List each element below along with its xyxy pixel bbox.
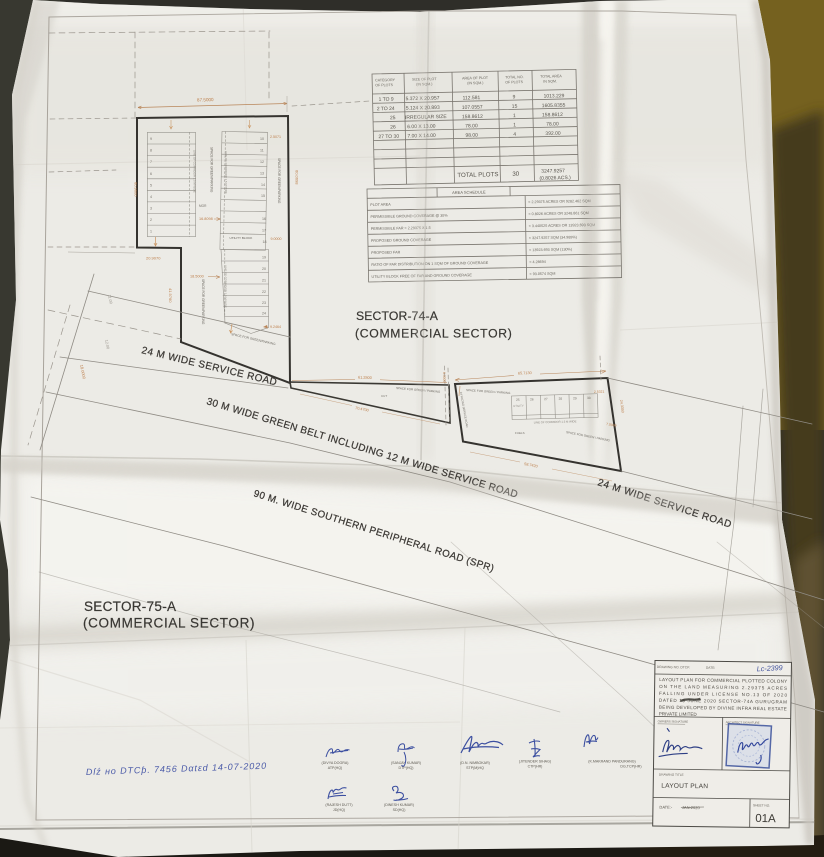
- svg-text:112.581: 112.581: [463, 95, 481, 101]
- svg-text:= 13923.693 SQM (130%): = 13923.693 SQM (130%): [529, 247, 572, 252]
- svg-text:1: 1: [513, 113, 516, 119]
- svg-text:(0.8026 ACS.): (0.8026 ACS.): [539, 175, 571, 182]
- svg-text:DATE:: DATE:: [706, 666, 716, 670]
- svg-text:PROPOSED FAR: PROPOSED FAR: [371, 250, 400, 255]
- svg-text:SPACE FOR GREEN/PARKING: SPACE FOR GREEN/PARKING: [210, 147, 214, 193]
- svg-text:25: 25: [390, 115, 396, 121]
- svg-text:MGR: MGR: [199, 204, 207, 208]
- svg-text:CUT: CUT: [381, 394, 387, 398]
- svg-text:158.8612: 158.8612: [542, 112, 563, 118]
- svg-text:(COMMERCIAL SECTOR): (COMMERCIAL SECTOR): [355, 327, 513, 341]
- svg-text:87.5000: 87.5000: [197, 97, 214, 102]
- svg-text:IN SQM.: IN SQM.: [543, 79, 557, 83]
- svg-text:= 4.28694: = 4.28694: [529, 260, 546, 264]
- svg-text:LAYOUT PLAN: LAYOUT PLAN: [661, 783, 708, 791]
- svg-text:1 TO 9: 1 TO 9: [379, 97, 394, 103]
- svg-text:SD(HQ): SD(HQ): [393, 808, 406, 812]
- svg-text:98.00: 98.00: [465, 133, 478, 139]
- svg-text:DTP(HQ): DTP(HQ): [399, 766, 414, 770]
- svg-text:PRIVATE LIMITED: PRIVATE LIMITED: [659, 711, 698, 717]
- svg-text:UTILITY BLOCK: UTILITY BLOCK: [230, 236, 254, 240]
- svg-text:DRAWING TITLE: DRAWING TITLE: [659, 773, 684, 777]
- svg-text:6.00 X 13.00: 6.00 X 13.00: [407, 124, 436, 131]
- svg-text:14: 14: [261, 183, 265, 187]
- svg-text:19: 19: [262, 256, 266, 260]
- svg-text:(DIVYA DOGRA): (DIVYA DOGRA): [322, 761, 349, 765]
- svg-text:60.9600: 60.9600: [134, 182, 139, 197]
- svg-text:(RAJESH DUTT): (RAJESH DUTT): [325, 803, 352, 807]
- svg-text:2: 2: [150, 218, 152, 222]
- svg-text:78.00: 78.00: [465, 123, 478, 129]
- svg-text:5: 5: [150, 183, 152, 187]
- svg-text:9.2464: 9.2464: [270, 325, 281, 329]
- svg-text:15: 15: [512, 104, 518, 110]
- svg-text:= 3247.9257 SQM (34.989%): = 3247.9257 SQM (34.989%): [529, 235, 577, 240]
- svg-text:SPACE FOR GREEN/PARKING: SPACE FOR GREEN/PARKING: [201, 279, 205, 325]
- svg-text:158.8612: 158.8612: [462, 114, 483, 120]
- svg-text:30: 30: [512, 171, 520, 178]
- svg-text:26: 26: [530, 397, 534, 401]
- svg-text:OWNERS SIGNATURE: OWNERS SIGNATURE: [658, 719, 689, 723]
- svg-text:(COMMERCIAL SECTOR): (COMMERCIAL SECTOR): [83, 616, 255, 631]
- svg-text:FUELS: FUELS: [515, 431, 525, 435]
- svg-text:01A: 01A: [755, 813, 776, 825]
- svg-text:2 TO 24: 2 TO 24: [377, 106, 395, 112]
- svg-text:AREA SCHEDULE: AREA SCHEDULE: [452, 189, 486, 195]
- svg-text:30: 30: [587, 396, 591, 400]
- svg-text:5.372 X 20.957: 5.372 X 20.957: [406, 95, 440, 102]
- svg-text:7.00 X 14.00: 7.00 X 14.00: [407, 133, 436, 140]
- svg-text:1013.229: 1013.229: [543, 93, 564, 99]
- svg-text:17: 17: [262, 228, 266, 232]
- svg-text:23: 23: [262, 301, 266, 305]
- svg-text:11: 11: [260, 149, 264, 153]
- svg-text:2.5321: 2.5321: [594, 390, 605, 394]
- svg-text:TOTAL NO.: TOTAL NO.: [505, 75, 524, 79]
- svg-text:IRREGULAR SIZE: IRREGULAR SIZE: [405, 114, 447, 121]
- svg-text:16.8098: 16.8098: [199, 217, 213, 221]
- svg-text:78.00: 78.00: [546, 121, 559, 127]
- svg-text:CTP(HR): CTP(HR): [528, 765, 543, 769]
- svg-text:6: 6: [150, 172, 152, 176]
- svg-text:9: 9: [512, 94, 515, 100]
- svg-text:(K.MAKRAND PANDURANG): (K.MAKRAND PANDURANG): [588, 760, 635, 764]
- svg-text:4: 4: [513, 132, 516, 138]
- svg-text:10: 10: [260, 137, 264, 141]
- svg-text:(JITENDER SIHAG): (JITENDER SIHAG): [519, 760, 551, 764]
- svg-text:65.7130: 65.7130: [518, 371, 532, 375]
- svg-text:22: 22: [262, 290, 266, 294]
- svg-text:(D.N. NIMBOKAR): (D.N. NIMBOKAR): [460, 761, 490, 765]
- svg-text:SPACE FOR GREEN/PARKING: SPACE FOR GREEN/PARKING: [277, 158, 281, 204]
- svg-text:LINE OF CORRIDOR 1.5 M WIDE: LINE OF CORRIDOR 1.5 M WIDE: [224, 151, 228, 194]
- svg-text:16: 16: [262, 217, 266, 221]
- svg-text:OF PLOTS: OF PLOTS: [505, 80, 523, 84]
- svg-text:3: 3: [150, 207, 152, 211]
- svg-text:8: 8: [150, 149, 152, 153]
- svg-text:18: 18: [263, 240, 267, 244]
- svg-text:7: 7: [150, 160, 152, 164]
- svg-text:LINE OF CORRIDOR 1.5 M WIDE: LINE OF CORRIDOR 1.5 M WIDE: [224, 265, 228, 308]
- svg-text:29: 29: [573, 396, 577, 400]
- svg-text:41.9760: 41.9760: [168, 288, 173, 303]
- svg-text:DRAWING NO. DTCP:: DRAWING NO. DTCP:: [657, 665, 691, 669]
- svg-text:PLOT AREA: PLOT AREA: [370, 203, 391, 207]
- svg-text:9.0000: 9.0000: [271, 237, 282, 241]
- svg-text:OF PLOTS: OF PLOTS: [375, 83, 393, 87]
- svg-text:18.5000: 18.5000: [190, 275, 204, 279]
- svg-text:AREA OF PLOT: AREA OF PLOT: [462, 76, 489, 81]
- svg-text:DATE:-: DATE:-: [659, 805, 673, 810]
- svg-text:12: 12: [260, 160, 264, 164]
- svg-text:4: 4: [150, 195, 152, 199]
- svg-text:1: 1: [513, 122, 516, 128]
- svg-text:TOTAL PLOTS: TOTAL PLOTS: [457, 171, 498, 179]
- svg-text:SECTOR-75-A: SECTOR-75-A: [84, 599, 176, 614]
- svg-text:27 TO 30: 27 TO 30: [378, 134, 399, 140]
- svg-text:3247.9257: 3247.9257: [541, 168, 565, 175]
- svg-text:1605.8355: 1605.8355: [542, 103, 566, 110]
- svg-text:UTILITY: UTILITY: [513, 404, 524, 408]
- svg-text:5.124 X 20.893: 5.124 X 20.893: [406, 105, 440, 112]
- svg-text:9: 9: [150, 137, 152, 141]
- svg-text:107.0557: 107.0557: [462, 104, 483, 110]
- svg-text:1: 1: [150, 230, 152, 234]
- svg-text:8.3000: 8.3000: [442, 372, 446, 383]
- svg-text:DG,TCP(HR): DG,TCP(HR): [620, 765, 641, 769]
- svg-text:21: 21: [262, 279, 266, 283]
- svg-text:(IN SQM.): (IN SQM.): [467, 81, 483, 85]
- svg-text:= 93.0574 SQM: = 93.0574 SQM: [529, 272, 555, 276]
- svg-text:TOTAL AREA: TOTAL AREA: [540, 74, 562, 79]
- svg-text:28: 28: [559, 397, 563, 401]
- svg-text:20.9070: 20.9070: [146, 256, 161, 261]
- svg-text:25: 25: [516, 398, 520, 402]
- svg-text:STP(M)HQ: STP(M)HQ: [466, 766, 484, 770]
- svg-text:15: 15: [261, 194, 265, 198]
- svg-text:CATEGORY: CATEGORY: [375, 78, 396, 82]
- svg-text:13: 13: [260, 171, 264, 175]
- svg-text:24: 24: [262, 312, 266, 316]
- svg-text:26: 26: [390, 124, 396, 130]
- svg-text:392.00: 392.00: [545, 131, 561, 137]
- svg-text:ATP(HQ): ATP(HQ): [328, 766, 343, 770]
- svg-text:27: 27: [544, 397, 548, 401]
- svg-text:LINE OF CORRIDOR 1.5 M WIDE: LINE OF CORRIDOR 1.5 M WIDE: [193, 150, 197, 193]
- svg-text:(IN SQM.): (IN SQM.): [416, 82, 432, 86]
- svg-text:JD(HQ): JD(HQ): [333, 808, 345, 812]
- svg-text:SECTOR-74-A: SECTOR-74-A: [356, 309, 439, 323]
- svg-text:20: 20: [262, 267, 266, 271]
- svg-text:60.0698: 60.0698: [295, 170, 300, 185]
- svg-text:61.2800: 61.2800: [358, 376, 372, 380]
- svg-text:2.5071: 2.5071: [270, 135, 281, 139]
- svg-text:(DINESH KUMAR): (DINESH KUMAR): [384, 803, 414, 807]
- svg-text:Lc-2399: Lc-2399: [756, 663, 782, 673]
- svg-text:SHEET NO.: SHEET NO.: [753, 803, 770, 807]
- svg-text:SIZE OF PLOT: SIZE OF PLOT: [412, 77, 437, 82]
